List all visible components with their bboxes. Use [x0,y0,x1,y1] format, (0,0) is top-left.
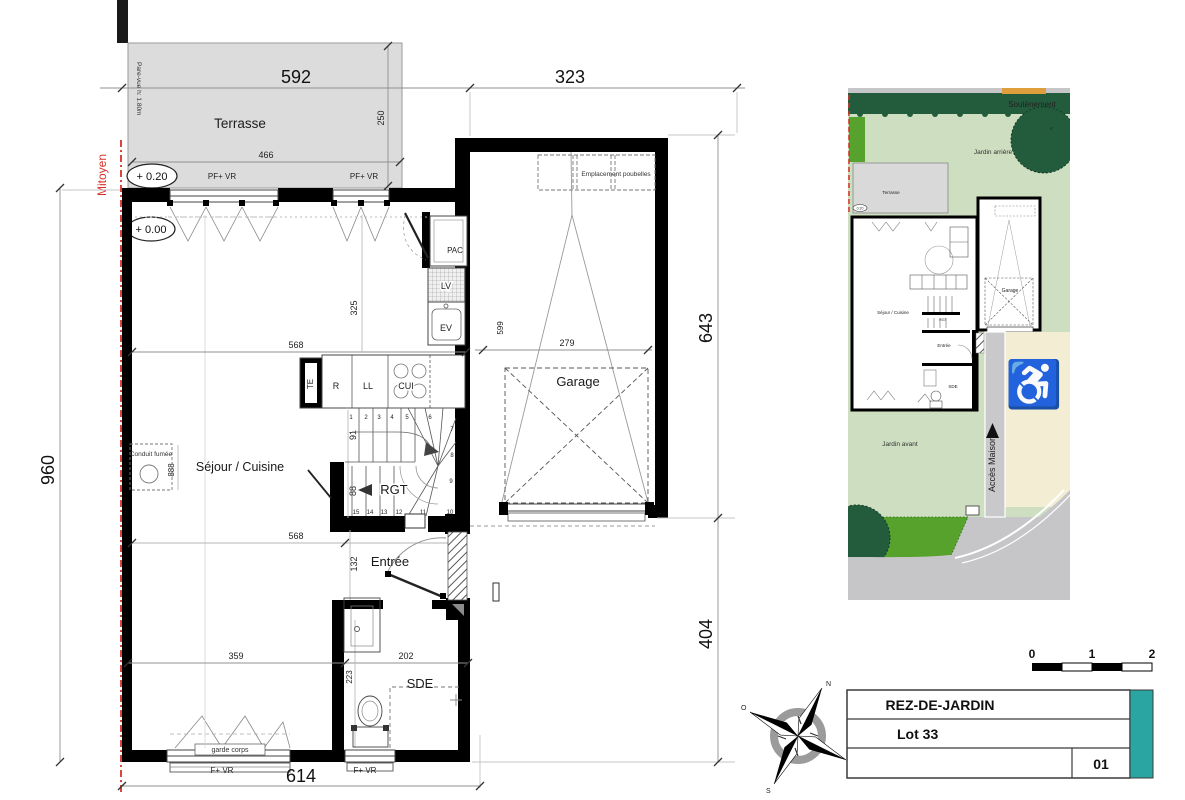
party-wall-stub [117,0,128,43]
entry-upper-door [405,514,425,528]
level-020: + 0.20 [137,171,168,183]
mini-garage [978,198,1040,330]
compass-s: S [766,788,771,795]
dim-132: 132 [349,556,359,571]
conduit-label: Conduit fumée [130,451,173,458]
site-plan: Soutènement Jardin arrière x Terrasse 0.… [824,88,1077,600]
window-top-left [167,190,280,241]
dim-404: 404 [696,619,716,649]
compass-rose-icon: N O E S [741,681,854,795]
window-fvr-right: F+ VR [354,766,377,775]
ll-label: LL [363,381,373,391]
dim-568-bottom: 568 [288,531,303,541]
stair-4: 4 [390,415,394,421]
dim-568-top: 568 [288,340,303,350]
lv-label: LV [441,281,451,291]
mini-terrace [853,163,948,213]
terrace-label: Terrasse [214,116,266,131]
entry-door-leaf [388,574,443,597]
entry-door-wall-hatch [448,532,467,600]
dim-279: 279 [559,338,574,348]
floor-name: REZ-DE-JARDIN [886,697,995,713]
stair-10: 10 [447,510,454,516]
interior-dim-lines [128,215,468,748]
scale-bar: 0 1 2 [1029,647,1156,671]
stair-6: 6 [428,415,432,421]
stair-13: 13 [381,510,388,516]
mini-level-020: 0.20 [857,207,864,211]
door-tip [385,571,391,577]
compass-n: N [826,681,831,688]
mini-entree-label: Entrée [937,343,951,348]
ev-label: EV [440,323,452,333]
scale-0: 0 [1029,647,1036,661]
tree-top [1011,107,1077,173]
kitchen-counter [300,355,465,408]
stair-1: 1 [349,415,353,421]
dim-202: 202 [398,651,413,661]
staircase [345,408,458,516]
window-pfvr-right: PF+ VR [350,172,378,181]
stair-5: 5 [405,415,409,421]
stair-7: 7 [450,427,454,433]
emplacement-poubelles-label: Emplacement poubelles [581,171,651,178]
dim-88: 88 [348,486,358,496]
mini-sde-label: SDE [948,384,957,389]
dim-643: 643 [696,313,716,343]
main-floor-plan: 592 323 466 250 Terrasse Mitoyen Pare-vu… [38,0,745,792]
scale-1: 1 [1089,647,1096,661]
scale-2: 2 [1149,647,1156,661]
window-fvr-left: F+ VR [211,766,234,775]
door-hinge [440,593,446,599]
dim-592: 592 [281,67,311,87]
dim-91: 91 [348,430,358,440]
stair-2: 2 [364,415,368,421]
title-block: REZ-DE-JARDIN Lot 33 01 [847,690,1153,778]
rgt-arrow-icon [358,484,372,496]
window-top-right [331,190,390,241]
rgt-door [308,470,331,498]
jardin-avant-label: Jardin avant [882,441,918,448]
front-gate [966,506,979,515]
stair-14: 14 [367,510,374,516]
rgt-label: RGT [380,482,408,497]
mini-garage-label: Garage [1002,288,1019,294]
garde-corps-label: garde corps [212,747,249,754]
handicap-icon: ♿ [1005,358,1062,411]
level-000: + 0.00 [136,224,167,236]
dim-250: 250 [376,110,386,125]
sde-label: SDE [407,676,434,691]
fridge-label: R [333,381,340,391]
garage-label: Garage [556,374,599,389]
stair-12: 12 [396,510,403,516]
architectural-plan-page: 592 323 466 250 Terrasse Mitoyen Pare-vu… [0,0,1185,800]
lot-number: Lot 33 [897,726,938,742]
tree-mark: x [1049,126,1053,132]
dim-323: 323 [555,67,585,87]
jardin-arriere-label: Jardin arrière [974,149,1013,156]
pac-label: PAC [447,246,463,255]
window-bottom-left [167,716,290,772]
dim-359: 359 [228,651,243,661]
compass-o: O [741,705,747,712]
sde-room [344,598,462,748]
stair-15: 15 [353,510,360,516]
cui-label: CUI [398,381,414,391]
entree-label: Entrée [371,554,409,569]
sheet-number: 01 [1093,756,1109,772]
dim-466: 466 [258,150,273,160]
pare-vue-label: Pare-vue h: 1.80m [135,62,142,115]
dim-325: 325 [349,300,359,315]
soutenement-label: Soutènement [1008,100,1056,109]
window-pfvr-left: PF+ VR [208,172,236,181]
sejour-label: Séjour / Cuisine [196,460,284,474]
kitchen-column [404,213,467,345]
dim-614: 614 [286,766,316,786]
dim-960: 960 [38,455,58,485]
walls [122,138,668,762]
dim-599: 599 [496,321,505,335]
te-label: TE [306,379,315,389]
dim-223: 223 [345,670,354,684]
soutenement-strip [1002,88,1046,94]
plan-canvas: 592 323 466 250 Terrasse Mitoyen Pare-vu… [0,0,1185,800]
dim-888: 888 [167,463,176,477]
stair-3: 3 [377,415,381,421]
acces-maison-label: Accès Maison [987,436,997,492]
green-strip-left [849,117,865,162]
stair-9: 9 [449,479,453,485]
mini-sejour-label: Séjour / Cuisine [877,310,909,315]
mini-terrace-label: Terrasse [882,190,900,195]
exterior-marker [493,583,499,601]
stair-8: 8 [450,453,454,459]
mini-rgt-label: RGT [939,318,947,322]
title-accent-bar [1130,690,1153,778]
